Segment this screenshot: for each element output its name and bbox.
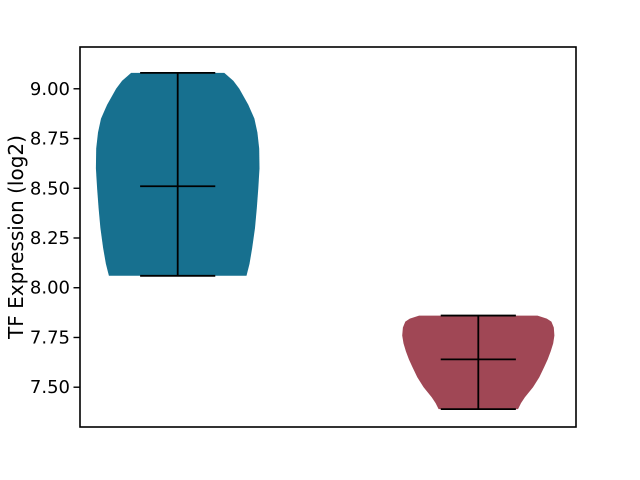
y-tick-label: 8.75 [30,129,70,150]
y-axis: 9.008.758.508.258.007.757.50 [30,79,80,398]
figure-canvas: 9.008.758.508.258.007.757.50 TF Expressi… [0,0,640,480]
y-axis-label: TF Expression (log2) [4,135,28,340]
y-tick-label: 8.25 [30,228,70,249]
y-tick-label: 8.50 [30,178,70,199]
y-tick-label: 7.75 [30,327,70,348]
violin-1-group [96,73,260,276]
y-tick-label: 7.50 [30,377,70,398]
violins-layer [96,73,555,409]
violin-2-group [402,316,554,410]
y-tick-label: 8.00 [30,278,70,299]
violin-plot: 9.008.758.508.258.007.757.50 TF Expressi… [0,0,640,480]
y-tick-label: 9.00 [30,79,70,100]
